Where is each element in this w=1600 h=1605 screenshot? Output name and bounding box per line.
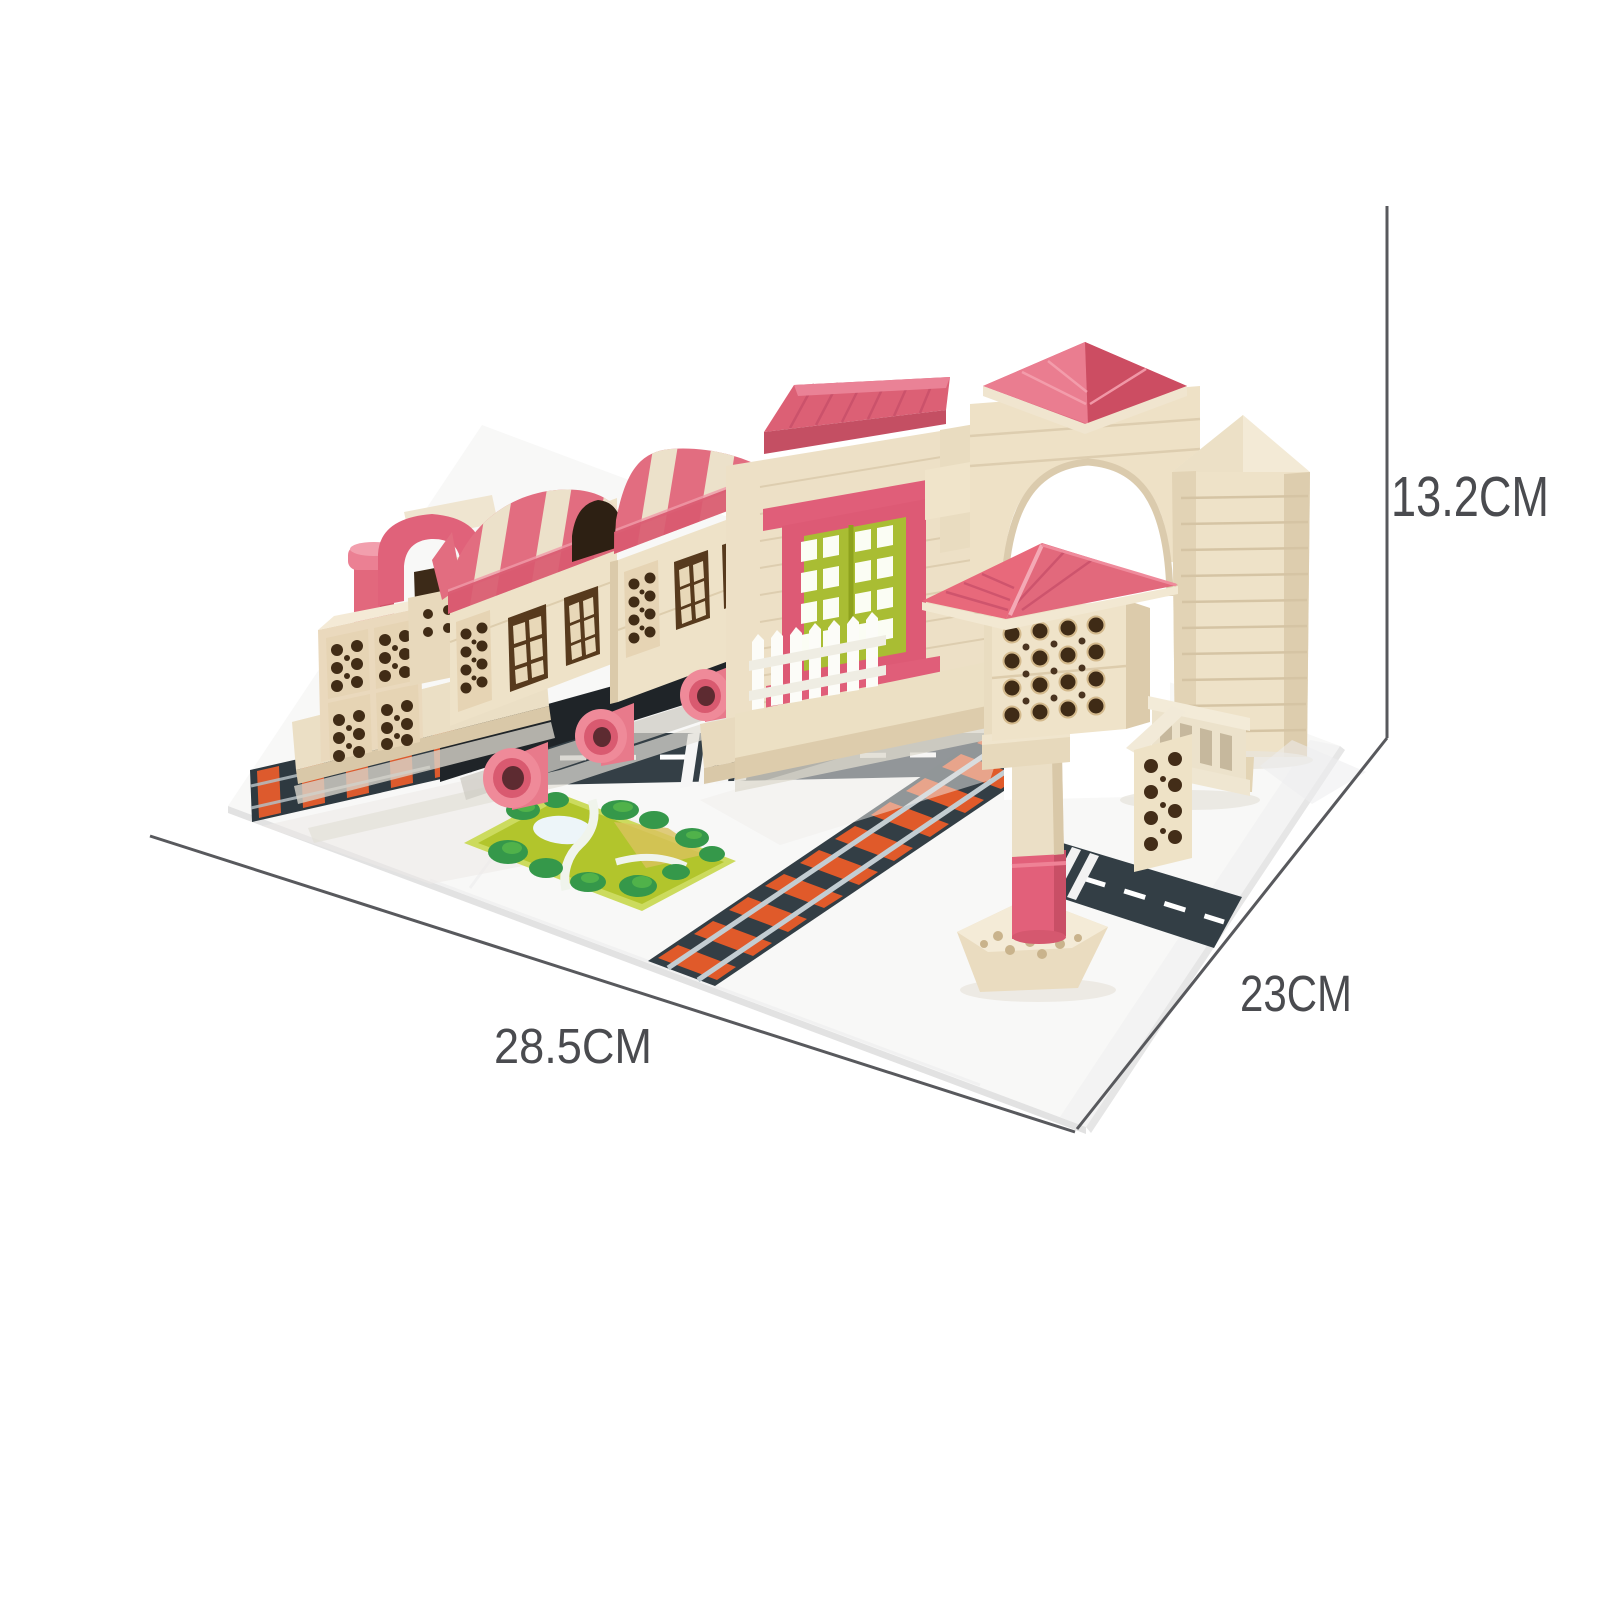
svg-text:13.2CM: 13.2CM bbox=[1391, 465, 1549, 529]
svg-text:28.5CM: 28.5CM bbox=[494, 1020, 652, 1074]
svg-text:23CM: 23CM bbox=[1240, 965, 1352, 1022]
